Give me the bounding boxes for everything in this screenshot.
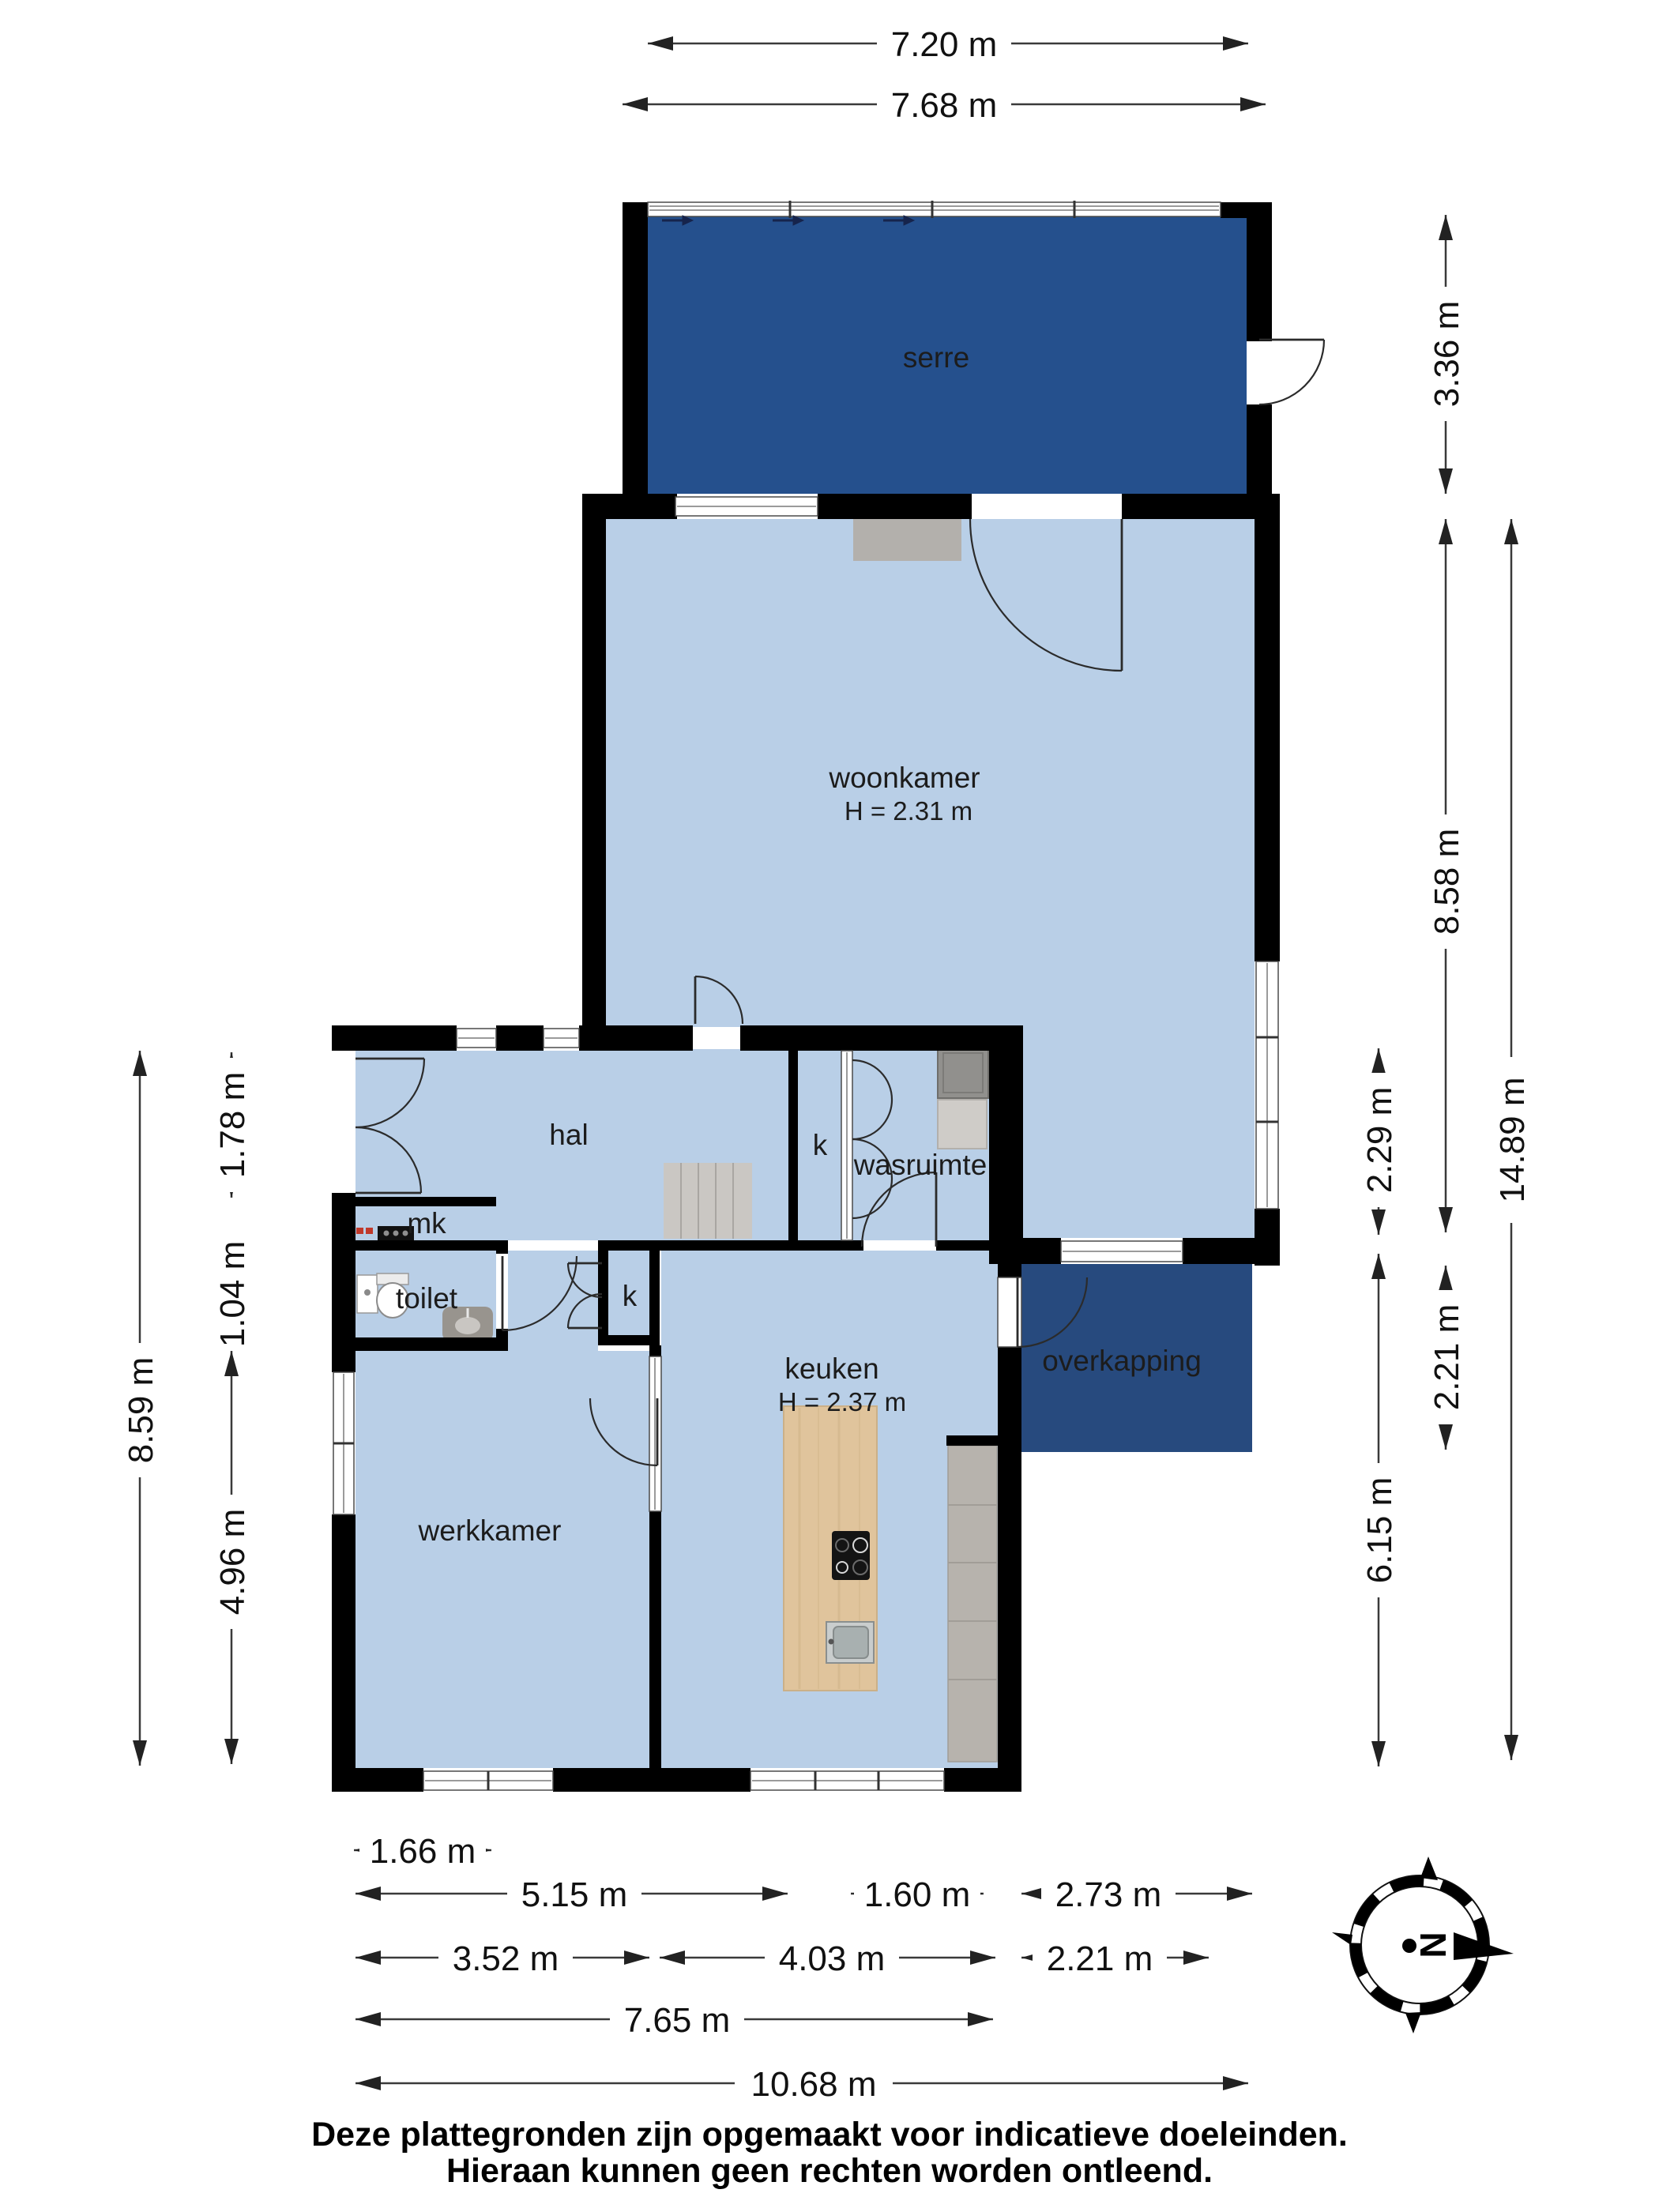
svg-text:1.78 m: 1.78 m: [213, 1072, 252, 1179]
dim-right-615: 6.15 m: [1358, 1254, 1399, 1766]
dim-bottom-273: 2.73 m: [1021, 1873, 1252, 1914]
svg-text:14.89 m: 14.89 m: [1493, 1078, 1532, 1203]
washing-machine: [938, 1048, 988, 1149]
label-wasruimte: wasruimte: [853, 1149, 987, 1181]
svg-text:6.15 m: 6.15 m: [1360, 1477, 1399, 1584]
dim-bottom-352: 3.52 m: [355, 1937, 649, 1978]
dim-right-858: 8.58 m: [1425, 519, 1466, 1232]
label-mk: mk: [407, 1207, 446, 1240]
dim-bottom-765: 7.65 m: [355, 1999, 993, 2040]
door-opening: [863, 1240, 936, 1251]
label-closet-keuken: k: [623, 1280, 638, 1312]
dim-bottom-403: 4.03 m: [660, 1937, 995, 1978]
svg-text:4.03 m: 4.03 m: [779, 1939, 886, 1978]
serre-door-opening: [972, 495, 1122, 517]
label-woonkamer-height: H = 2.31 m: [845, 796, 972, 826]
label-werkkamer: werkkamer: [418, 1514, 562, 1547]
svg-text:8.58 m: 8.58 m: [1428, 829, 1466, 935]
svg-text:1.66 m: 1.66 m: [370, 1832, 476, 1871]
doormat: [853, 519, 961, 561]
svg-text:3.36 m: 3.36 m: [1428, 301, 1466, 408]
svg-text:2.73 m: 2.73 m: [1055, 1875, 1162, 1914]
dim-right-1489: 14.89 m: [1491, 519, 1532, 1760]
dim-bottom-1068: 10.68 m: [355, 2063, 1248, 2104]
compass-spike-bottom: [1405, 2012, 1421, 2033]
dim-bottom-221: 2.21 m: [1021, 1937, 1209, 1978]
room-passage: [508, 1251, 598, 1353]
stairs: [664, 1163, 752, 1239]
dim-bottom-515: 5.15 m: [355, 1873, 788, 1914]
room-werkkamer: [355, 1351, 649, 1768]
label-keuken-height: H = 2.37 m: [778, 1387, 906, 1416]
svg-text:1.04 m: 1.04 m: [213, 1241, 252, 1348]
label-serre: serre: [903, 341, 969, 374]
svg-text:7.68 m: 7.68 m: [891, 86, 998, 125]
svg-text:2.21 m: 2.21 m: [1047, 1939, 1153, 1978]
kitchen-counter: [948, 1446, 997, 1762]
compass-spike-top: [1420, 1856, 1438, 1880]
dim-left-496: 4.96 m: [211, 1351, 252, 1764]
footer: Deze plattegronden zijn opgemaakt voor i…: [311, 2116, 1348, 2190]
kitchen-island: [784, 1406, 877, 1691]
label-woonkamer: woonkamer: [828, 762, 980, 794]
svg-text:7.65 m: 7.65 m: [624, 2001, 731, 2040]
svg-text:5.15 m: 5.15 m: [521, 1875, 628, 1914]
dim-bottom-160: 1.60 m: [851, 1873, 984, 1914]
compass-spike-left: [1332, 1932, 1352, 1945]
front-door-opening: [332, 1056, 355, 1193]
dim-top-720: 7.20 m: [648, 23, 1248, 64]
label-hal: hal: [549, 1119, 588, 1151]
label-overkapping: overkapping: [1042, 1345, 1202, 1377]
dim-left-178: 1.78 m: [211, 1052, 252, 1198]
dim-top-768: 7.68 m: [623, 84, 1266, 125]
svg-text:8.59 m: 8.59 m: [122, 1357, 160, 1464]
compass: N: [1332, 1856, 1514, 2033]
door-opening: [693, 1027, 740, 1049]
door-opening: [1247, 341, 1272, 404]
dim-right-336: 3.36 m: [1425, 215, 1466, 494]
label-closet-hal: k: [813, 1129, 828, 1161]
dim-left-104: 1.04 m: [211, 1227, 252, 1361]
label-keuken: keuken: [784, 1352, 878, 1385]
svg-text:10.68 m: 10.68 m: [751, 2065, 877, 2104]
footer-line2: Hieraan kunnen geen rechten worden ontle…: [446, 2152, 1213, 2190]
svg-text:3.52 m: 3.52 m: [453, 1939, 559, 1978]
dim-left-859: 8.59 m: [119, 1051, 160, 1766]
compass-north-label: N: [1413, 1932, 1454, 1958]
serre-glass-band: [648, 201, 1221, 218]
dim-right-229: 2.29 m: [1358, 1048, 1399, 1235]
label-toilet: toilet: [396, 1282, 458, 1315]
svg-text:1.60 m: 1.60 m: [864, 1875, 971, 1914]
svg-text:4.96 m: 4.96 m: [213, 1509, 252, 1616]
svg-text:2.21 m: 2.21 m: [1428, 1304, 1466, 1411]
floorplan-page: serre woonkamer H = 2.31 m hal k wasruim…: [0, 0, 1659, 2212]
footer-line1: Deze plattegronden zijn opgemaakt voor i…: [311, 2116, 1348, 2154]
svg-text:7.20 m: 7.20 m: [891, 25, 998, 64]
dim-right-221: 2.21 m: [1425, 1266, 1466, 1450]
svg-text:2.29 m: 2.29 m: [1360, 1087, 1399, 1194]
dim-bottom-166: 1.66 m: [354, 1830, 491, 1871]
floorplan-canvas: serre woonkamer H = 2.31 m hal k wasruim…: [0, 0, 1659, 2212]
